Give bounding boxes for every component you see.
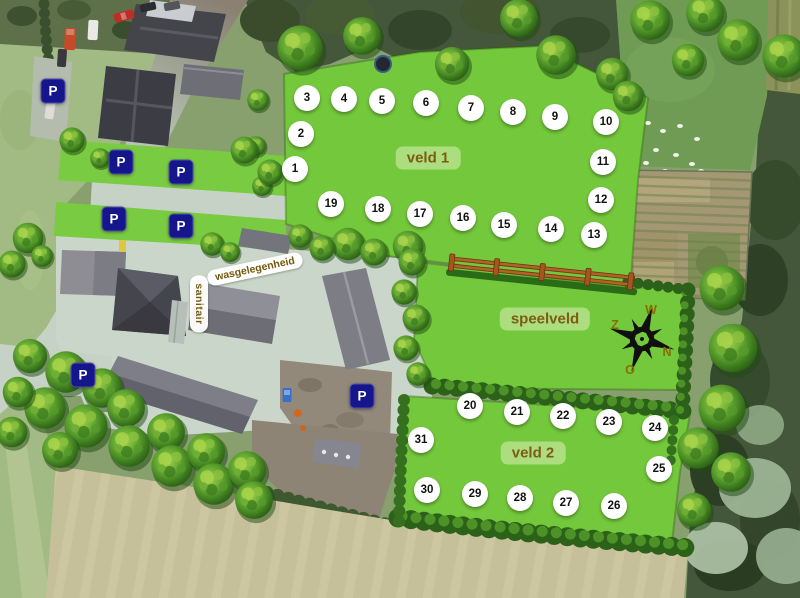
parking-marker-1: P (41, 79, 66, 104)
pitch-marker-30: 30 (414, 477, 440, 503)
pitch-marker-8: 8 (500, 99, 526, 125)
pitch-marker-18: 18 (365, 196, 391, 222)
field-label-veld2: veld 2 (501, 442, 566, 465)
pitch-marker-21: 21 (504, 399, 530, 425)
pitch-marker-28: 28 (507, 485, 533, 511)
pitch-marker-3: 3 (294, 85, 320, 111)
parking-marker-2: P (109, 150, 134, 175)
parking-marker-5: P (169, 214, 194, 239)
pitch-marker-13: 13 (581, 222, 607, 248)
pitch-marker-6: 6 (413, 90, 439, 116)
pitch-marker-25: 25 (646, 456, 672, 482)
pitch-marker-17: 17 (407, 201, 433, 227)
compass-letter-z: Z (611, 318, 619, 332)
campsite-map: veld 1 speelveld veld 2 wasgelegenheid s… (0, 0, 800, 598)
pitch-marker-31: 31 (408, 427, 434, 453)
pitch-marker-27: 27 (553, 490, 579, 516)
compass-letter-o: O (625, 363, 635, 377)
parking-marker-4: P (102, 207, 127, 232)
pitch-marker-4: 4 (331, 86, 357, 112)
compass-letter-n: N (662, 345, 671, 359)
pitch-marker-23: 23 (596, 409, 622, 435)
pitch-marker-7: 7 (458, 95, 484, 121)
compass-letter-w: W (645, 303, 657, 317)
pitch-marker-16: 16 (450, 205, 476, 231)
pitch-marker-12: 12 (588, 187, 614, 213)
pitch-marker-29: 29 (462, 481, 488, 507)
pitch-marker-15: 15 (491, 212, 517, 238)
pitch-marker-26: 26 (601, 493, 627, 519)
parking-marker-3: P (169, 160, 194, 185)
map-overlay: veld 1 speelveld veld 2 wasgelegenheid s… (0, 0, 800, 598)
pitch-marker-11: 11 (590, 149, 616, 175)
pitch-marker-1: 1 (282, 156, 308, 182)
facility-label-wasgelegenheid: wasgelegenheid (206, 251, 304, 287)
pitch-marker-20: 20 (457, 393, 483, 419)
field-label-veld1: veld 1 (396, 147, 461, 170)
pitch-marker-9: 9 (542, 104, 568, 130)
facility-label-sanitair: sanitair (190, 275, 208, 332)
pitch-marker-5: 5 (369, 88, 395, 114)
pitch-marker-14: 14 (538, 216, 564, 242)
field-label-speelveld: speelveld (500, 308, 590, 331)
parking-marker-7: P (350, 384, 375, 409)
pitch-marker-10: 10 (593, 109, 619, 135)
parking-marker-6: P (71, 363, 96, 388)
pitch-marker-24: 24 (642, 415, 668, 441)
pitch-marker-19: 19 (318, 191, 344, 217)
pitch-marker-22: 22 (550, 403, 576, 429)
pitch-marker-2: 2 (288, 121, 314, 147)
